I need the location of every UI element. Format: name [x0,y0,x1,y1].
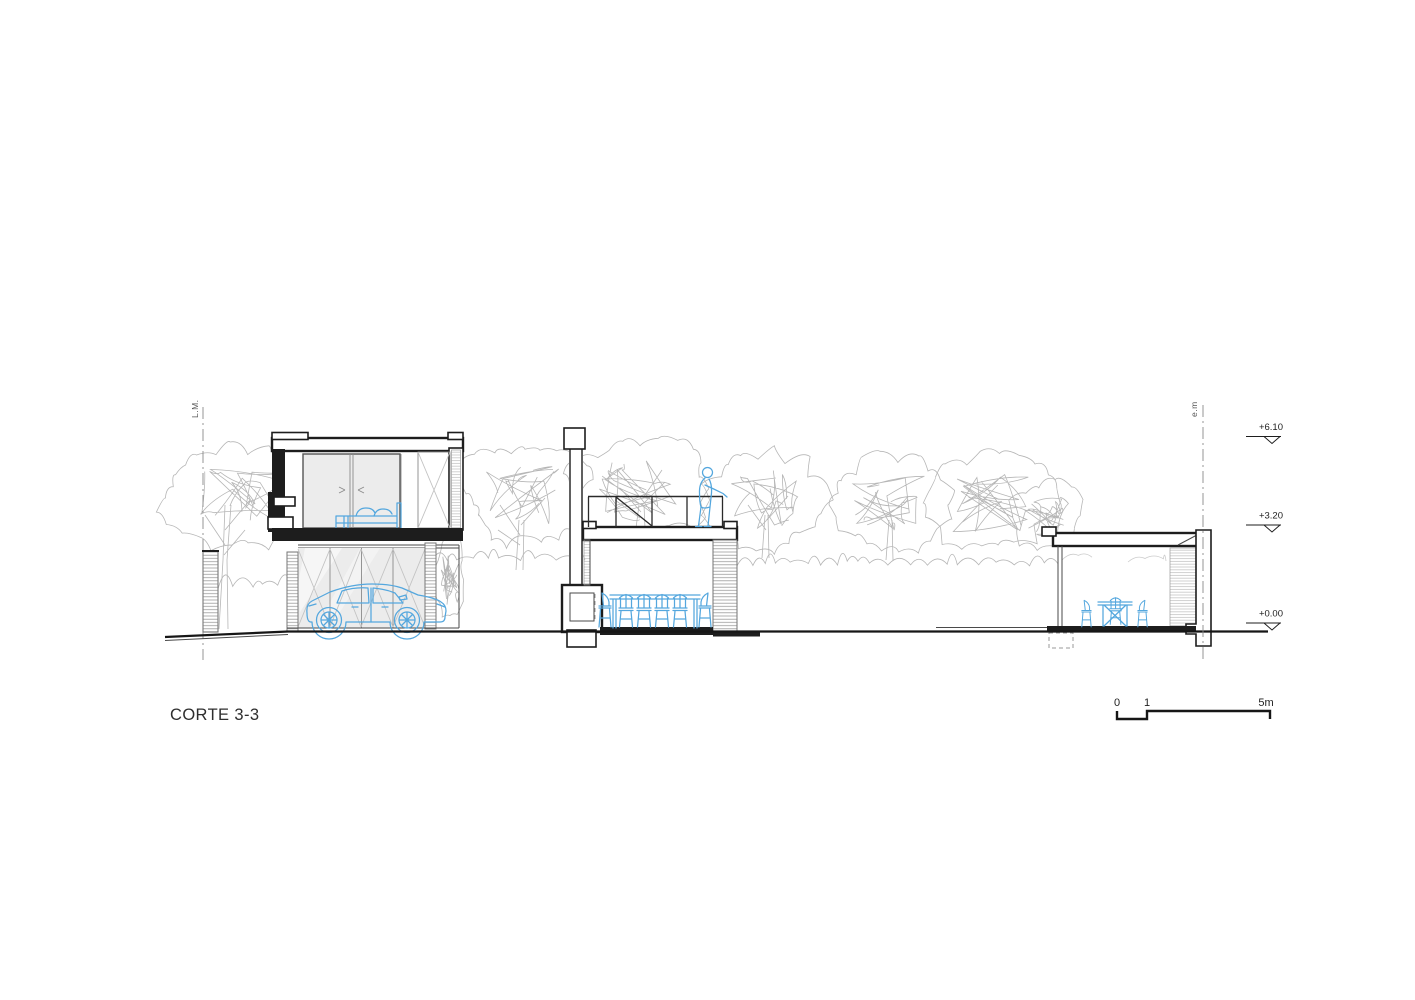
middle-roof-slab [583,527,737,540]
level-marker: +3.20 [1246,511,1283,533]
level-label: +0.00 [1259,609,1283,620]
tree-foliage [737,553,1058,566]
property-line-left-label: L.M. [190,399,200,418]
drawing-title: CORTE 3-3 [170,706,259,724]
right-roof-cap-left [1042,527,1056,536]
left-house-roof-cap-left [272,433,308,440]
level-symbol-icon [1246,437,1281,444]
foundation-dashed [1049,633,1073,648]
right-wall-inner-hatch [1170,548,1196,626]
property-line-left: L.M. [190,399,203,660]
middle-floor-step [713,632,760,637]
boundary-wall [202,551,219,632]
middle-roof-cap-left [583,522,596,529]
right-wall-left-glass [1058,546,1062,627]
boundary-wall-hatch [203,551,218,632]
garage-column-right-hatch [425,543,436,629]
facade-planter [268,517,293,529]
scale-bar-shape [1117,711,1270,719]
level-symbol-icon [1246,623,1281,630]
tree-foliage [432,549,585,562]
level-symbol-icon [1246,525,1281,532]
scale-bar: 0 1 5m [1114,697,1274,719]
left-house-roof-cap-right [448,433,463,440]
scale-tick-5m: 5m [1258,697,1273,709]
middle-wall-left-hatch [584,540,590,585]
bedroom-window-glass [303,454,400,528]
left-house-section [268,433,463,632]
scale-tick-0: 0 [1114,697,1120,709]
facade-ledge-upper [274,497,295,506]
tree-foliage [829,451,955,553]
right-pavilion-section [936,527,1211,648]
left-house-floor-slab [272,528,463,541]
chimney-cap [564,428,585,449]
left-house-wall-right-hatch [452,450,461,528]
level-label: +3.20 [1259,511,1283,522]
fireplace-body [562,585,602,632]
section-drawing: L.M. [0,0,1415,1000]
property-line-right-label: e.m [1189,401,1199,417]
garage-column-left-hatch [287,552,298,631]
level-markers: +6.10 +3.20 +0.00 [1246,422,1283,630]
right-roof-slab [1053,533,1197,546]
level-marker: +6.10 [1246,422,1283,444]
level-label: +6.10 [1259,422,1283,433]
level-marker: +0.00 [1246,609,1283,631]
middle-roof-cap-right [724,522,737,529]
chimney-flue-body [569,449,583,586]
scale-tick-1: 1 [1144,697,1150,709]
drawing-sheet: L.M. [0,0,1415,1000]
middle-wall-right-hatch [713,540,737,632]
